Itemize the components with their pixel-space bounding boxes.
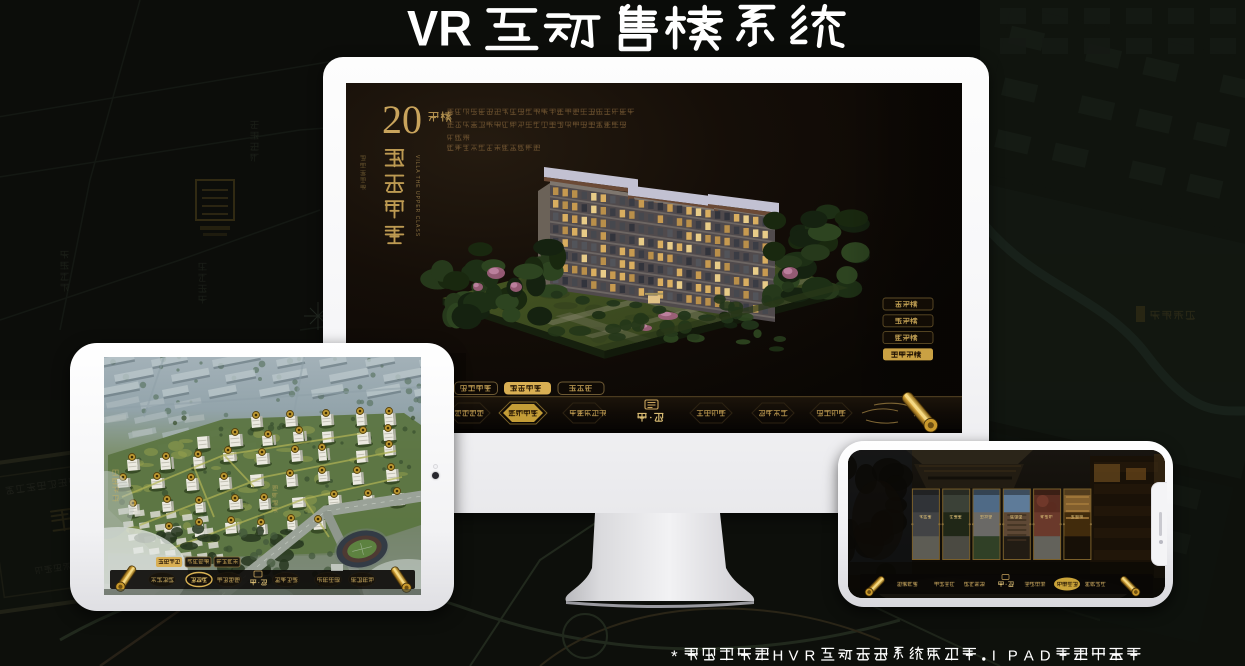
svg-text:I: I bbox=[992, 648, 996, 665]
svg-text:D: D bbox=[1040, 648, 1051, 665]
svg-text:*: * bbox=[671, 647, 678, 666]
svg-text:VR: VR bbox=[407, 1, 472, 57]
svg-text:20: 20 bbox=[382, 97, 422, 142]
svg-text:H: H bbox=[773, 648, 784, 665]
svg-text:V: V bbox=[789, 648, 799, 665]
svg-text:A: A bbox=[1024, 648, 1034, 665]
svg-text:R: R bbox=[805, 648, 816, 665]
svg-text:VILLA THE UPPER CLASS: VILLA THE UPPER CLASS bbox=[414, 155, 420, 237]
svg-text:P: P bbox=[1008, 648, 1018, 665]
